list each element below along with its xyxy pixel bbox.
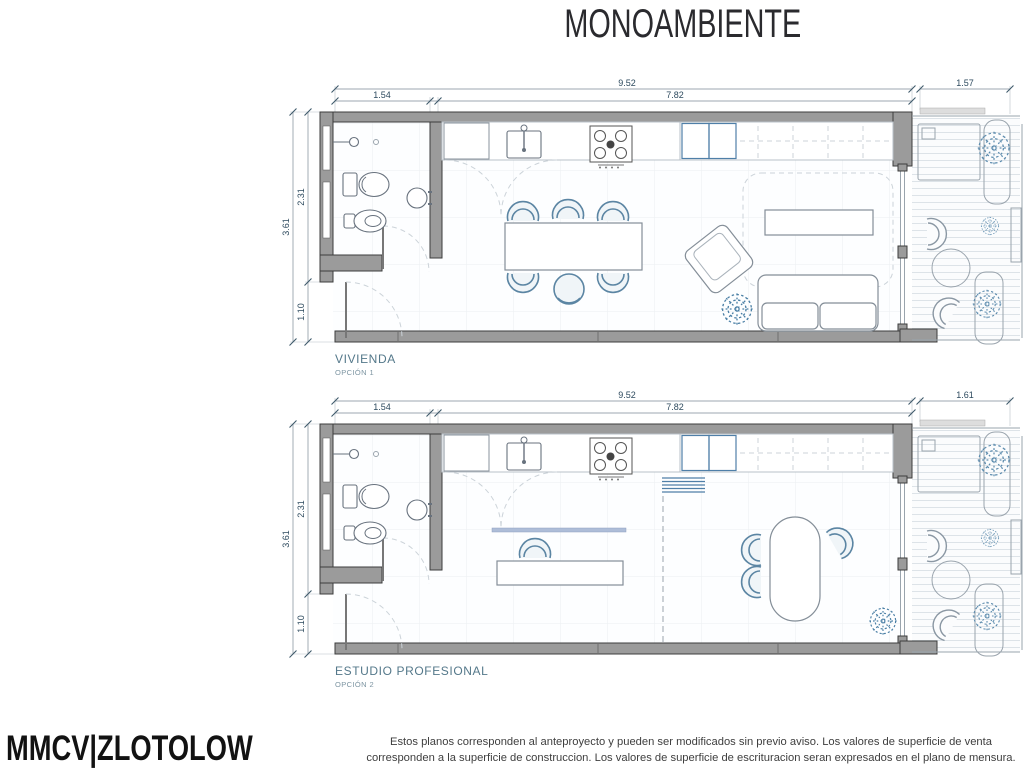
dim-total-width: 9.52	[618, 78, 636, 88]
plan1-name: VIVIENDA	[335, 352, 396, 366]
dining-table	[505, 223, 642, 270]
disclaimer-line2: corresponden a la superficie de construc…	[362, 751, 1020, 767]
meeting-table	[770, 517, 820, 621]
dim-bath-height: 2.31	[296, 500, 306, 518]
plan1-option: OPCIÓN 1	[335, 368, 396, 377]
dim-bath-width: 1.54	[373, 402, 391, 412]
floor-plan-vivienda: 9.52 1.54 7.82 1.57 3.61 2.31 1.10	[278, 76, 1024, 386]
dim-total-height: 3.61	[281, 530, 291, 548]
shelf	[492, 528, 626, 532]
dim-balcony-width: 1.61	[956, 390, 974, 400]
desk	[497, 561, 623, 585]
dim-main-width: 7.82	[666, 90, 684, 100]
dim-entry-height: 1.10	[296, 303, 306, 321]
disclaimer-line1: Estos planos corresponden al anteproyect…	[362, 735, 1020, 751]
floor-plan-estudio: 9.52 1.54 7.82 1.61 3.61 2.31 1.10	[278, 388, 1024, 698]
plan2-option: OPCIÓN 2	[335, 680, 488, 689]
dim-bath-height: 2.31	[296, 188, 306, 206]
plan2-label: ESTUDIO PROFESIONAL OPCIÓN 2	[335, 664, 488, 689]
plan2-name: ESTUDIO PROFESIONAL	[335, 664, 488, 678]
dining-set	[505, 200, 642, 304]
floorplan-sheet: MONOAMBIENTE	[0, 0, 1024, 768]
dim-total-width: 9.52	[618, 390, 636, 400]
disclaimer: Estos planos corresponden al anteproyect…	[362, 735, 1020, 766]
dim-balcony-width: 1.57	[956, 78, 974, 88]
plan1-label: VIVIENDA OPCIÓN 1	[335, 352, 396, 377]
dim-entry-height: 1.10	[296, 615, 306, 633]
page-title: MONOAMBIENTE	[564, 2, 751, 47]
coffee-table	[765, 210, 873, 235]
round-chair	[554, 274, 584, 304]
dim-bath-width: 1.54	[373, 90, 391, 100]
sofa	[758, 275, 878, 331]
dim-main-width: 7.82	[666, 402, 684, 412]
dim-total-height: 3.61	[281, 218, 291, 236]
studio-logo: MMCV|ZLOTOLOW	[6, 729, 253, 768]
